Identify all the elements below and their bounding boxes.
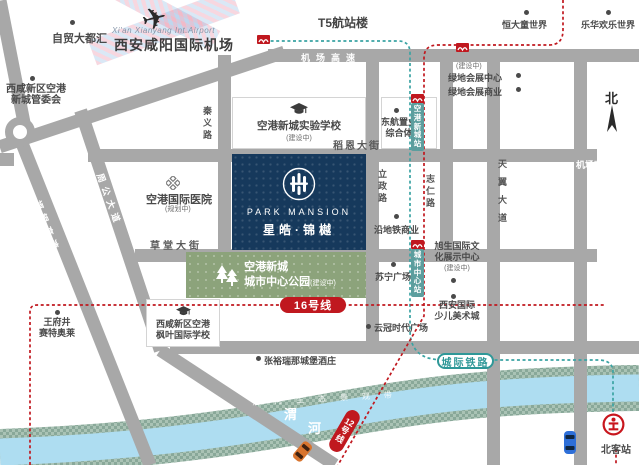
road-label-tianyi: 天翼大道 <box>497 155 508 227</box>
poi-zhangyu: 张裕瑞那城堡酒庄 <box>264 354 336 367</box>
poi-wangfujing: 王府井 赛特奥莱 <box>30 317 84 339</box>
poi-dot <box>394 108 399 113</box>
poi-shaoer-meishu: 西安国际 少儿美术城 <box>428 300 486 322</box>
poi-dot <box>451 278 456 283</box>
station-konggang-xincheng: 空港新城站 <box>411 94 424 151</box>
river-name-char2: 河 <box>308 418 321 437</box>
poi-lvdi-center: 绿地会展中心 <box>448 71 502 84</box>
road-label-airport-expwy-v: 机场高速 <box>576 155 587 175</box>
poi-zimao-dadouhui: 自贸大都汇 <box>52 30 107 46</box>
t5-terminal-label: T5航站楼 <box>318 14 368 31</box>
poi-dot <box>391 262 396 267</box>
airport-name-cn: 西安咸阳国际机场 <box>114 35 234 55</box>
line16-badge: 16号线 <box>280 297 346 313</box>
poi-dot <box>366 324 371 329</box>
poi-lvdi-shangye: 绿地会展商业 <box>448 85 502 98</box>
road-label-lizheng: 立政路 <box>377 168 388 204</box>
metro-line16-path <box>30 305 606 465</box>
poi-xusheng: 旭生国际文 化展示中心 (建设中) <box>428 241 486 274</box>
poi-dot <box>516 87 521 92</box>
poi-hengda: 恒大童世界 <box>502 18 547 31</box>
road-label-zhiren: 志仁路 <box>425 173 436 209</box>
hospital-icon <box>166 176 180 190</box>
road-label-caotang: 草堂大街 <box>150 237 202 252</box>
poi-beikezhan: 北客站 <box>601 441 631 456</box>
poi-dot <box>606 10 611 15</box>
poi-dot <box>524 10 529 15</box>
railway-station-icon <box>602 413 625 436</box>
poi-suning: 苏宁广场 <box>375 270 411 283</box>
poi-dot <box>451 294 456 299</box>
compass-needle-icon <box>606 105 618 133</box>
road-label-qinyi: 秦义路 <box>202 105 213 141</box>
poi-lvdi-note: (建设中) <box>456 61 482 71</box>
car-icon-blue <box>563 430 577 455</box>
poi-yanditie: 沿地铁商业 <box>374 223 419 236</box>
metro-station-icon-east <box>456 43 469 52</box>
poi-lehua: 乐华欢乐世界 <box>581 18 635 31</box>
metro-station-icon-t5 <box>257 35 270 44</box>
metro-station-icon <box>411 94 424 103</box>
poi-hospital-note: (规划中) <box>165 204 191 214</box>
river-name-char1: 渭 <box>284 404 297 423</box>
poi-yunguan: 云冠时代广场 <box>374 321 428 334</box>
station-chengshi-zhongxin: 城市中心站 <box>411 240 424 297</box>
airport-name-en: Xi'an Xianyang Int.Airport <box>112 26 215 35</box>
poi-guanweihui: 西咸新区空港 新城管委会 <box>2 84 70 106</box>
station-konggang-label: 空港新城站 <box>411 103 424 151</box>
poi-dot <box>30 76 35 81</box>
road-label-airport-expwy-h: 机场高速 <box>301 51 361 64</box>
station-chengshi-label: 城市中心站 <box>411 249 424 297</box>
poi-dot <box>394 214 399 219</box>
poi-dot <box>55 310 60 315</box>
metro-station-icon <box>411 240 424 249</box>
road-label-daoen: 稻恩大街 <box>333 137 381 152</box>
location-map: 空港新城实验学校 (建设中) PARK MANSION 星皓·锦樾 空港新城 城… <box>0 0 639 465</box>
poi-dot <box>70 20 75 25</box>
poi-dot <box>516 73 521 78</box>
intercity-rail-badge: 城际铁路 <box>437 353 494 369</box>
poi-dot <box>256 356 261 361</box>
